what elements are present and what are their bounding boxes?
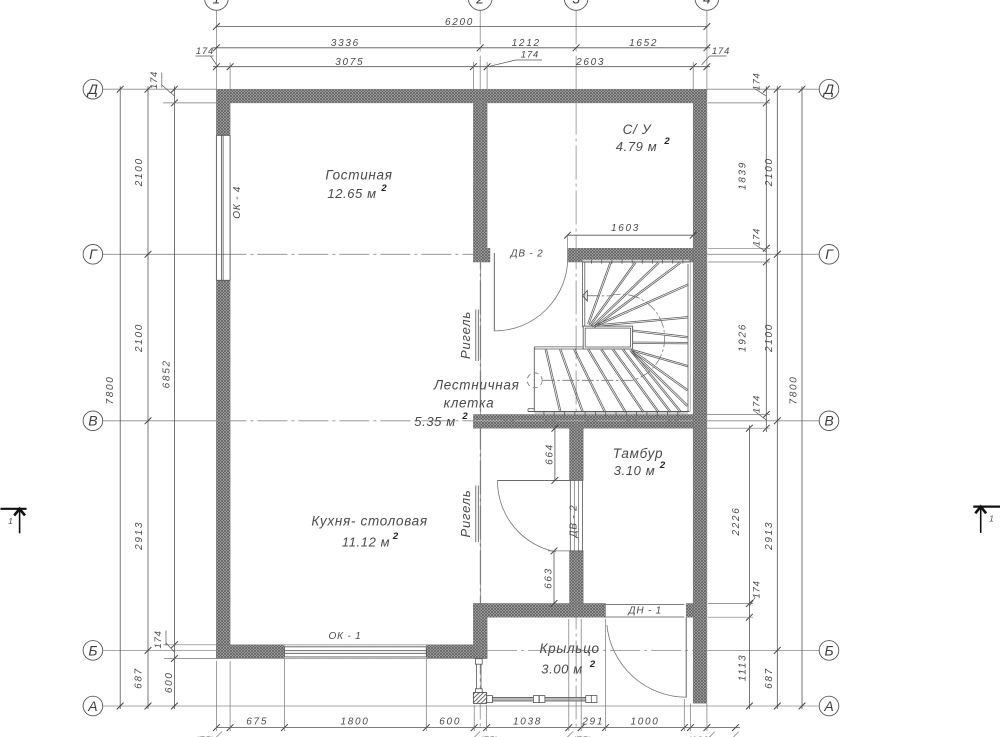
svg-text:174: 174: [153, 630, 164, 648]
svg-text:В: В: [88, 413, 97, 429]
svg-text:1652: 1652: [629, 38, 658, 49]
svg-text:1926: 1926: [738, 323, 749, 352]
svg-text:600: 600: [164, 671, 175, 693]
svg-text:В: В: [824, 413, 833, 429]
svg-text:174: 174: [752, 395, 763, 413]
svg-text:5.35 м: 5.35 м: [414, 414, 455, 429]
svg-text:11.12 м: 11.12 м: [342, 534, 390, 549]
svg-text:6852: 6852: [162, 359, 173, 388]
svg-text:3336: 3336: [331, 38, 360, 49]
svg-text:Б: Б: [88, 642, 97, 658]
svg-text:2: 2: [663, 136, 670, 147]
svg-text:ОК - 1: ОК - 1: [329, 631, 362, 642]
svg-text:2: 2: [380, 183, 387, 194]
svg-text:2226: 2226: [731, 506, 742, 536]
svg-text:Гостиная: Гостиная: [325, 168, 392, 183]
svg-text:ДВ - 2: ДВ - 2: [510, 249, 544, 260]
svg-text:4.79 м: 4.79 м: [616, 139, 657, 154]
svg-text:687: 687: [134, 667, 145, 689]
svg-text:1603: 1603: [611, 223, 640, 234]
svg-text:174: 174: [752, 580, 763, 598]
svg-text:Д: Д: [86, 81, 98, 97]
svg-text:687: 687: [764, 667, 775, 689]
svg-text:174: 174: [196, 46, 214, 57]
svg-text:Б: Б: [824, 642, 833, 658]
svg-text:Тамбур: Тамбур: [613, 446, 663, 461]
svg-text:3.10 м: 3.10 м: [614, 463, 655, 478]
svg-text:2: 2: [392, 531, 399, 542]
svg-text:600: 600: [439, 716, 461, 727]
svg-text:663: 663: [544, 567, 555, 589]
svg-text:1: 1: [8, 516, 13, 526]
svg-text:3.00 м: 3.00 м: [541, 662, 582, 677]
svg-text:Кухня- столовая: Кухня- столовая: [311, 513, 427, 528]
svg-text:2100: 2100: [134, 323, 145, 353]
svg-text:291: 291: [581, 716, 604, 727]
svg-text:174: 174: [752, 228, 763, 246]
svg-text:1000: 1000: [630, 716, 659, 727]
svg-text:клетка: клетка: [444, 396, 495, 411]
svg-text:2: 2: [475, 0, 484, 6]
svg-text:174: 174: [712, 46, 730, 57]
svg-text:1212: 1212: [512, 38, 541, 49]
svg-text:2913: 2913: [764, 521, 775, 551]
svg-text:174: 174: [752, 72, 763, 90]
svg-text:ДН - 1: ДН - 1: [628, 606, 663, 617]
svg-text:1113: 1113: [738, 654, 749, 682]
svg-text:7800: 7800: [789, 375, 800, 404]
svg-text:2100: 2100: [134, 157, 145, 187]
svg-text:Ригель: Ригель: [458, 490, 473, 538]
svg-text:А: А: [87, 698, 97, 714]
svg-text:ОК - 4: ОК - 4: [232, 186, 243, 219]
svg-text:1839: 1839: [738, 161, 749, 190]
svg-text:1: 1: [989, 514, 994, 524]
svg-text:2100: 2100: [764, 157, 775, 187]
svg-text:ДВ - 2: ДВ - 2: [569, 505, 580, 539]
svg-text:174: 174: [521, 50, 539, 61]
svg-text:2100: 2100: [764, 323, 775, 353]
svg-text:Лестничная: Лестничная: [433, 377, 520, 392]
svg-text:12.65 м: 12.65 м: [327, 186, 376, 201]
svg-text:4: 4: [703, 0, 711, 6]
svg-text:174: 174: [149, 71, 160, 89]
svg-text:С/ У: С/ У: [623, 122, 652, 137]
svg-text:2: 2: [659, 460, 666, 471]
svg-text:7800: 7800: [105, 375, 116, 404]
svg-text:Крыльцо: Крыльцо: [539, 641, 599, 656]
svg-text:1038: 1038: [513, 716, 542, 727]
svg-text:А: А: [823, 698, 833, 714]
svg-text:2: 2: [589, 659, 596, 670]
svg-text:2913: 2913: [134, 521, 145, 551]
svg-text:2: 2: [461, 411, 468, 422]
svg-text:675: 675: [246, 716, 268, 727]
svg-text:1800: 1800: [340, 716, 369, 727]
svg-text:Д: Д: [822, 81, 834, 97]
svg-text:2603: 2603: [575, 57, 605, 68]
svg-text:6200: 6200: [445, 17, 474, 28]
svg-text:1: 1: [213, 0, 221, 6]
svg-text:3: 3: [572, 0, 580, 6]
svg-text:3075: 3075: [335, 57, 364, 68]
svg-text:Ригель: Ригель: [458, 311, 473, 359]
svg-text:664: 664: [545, 443, 556, 465]
